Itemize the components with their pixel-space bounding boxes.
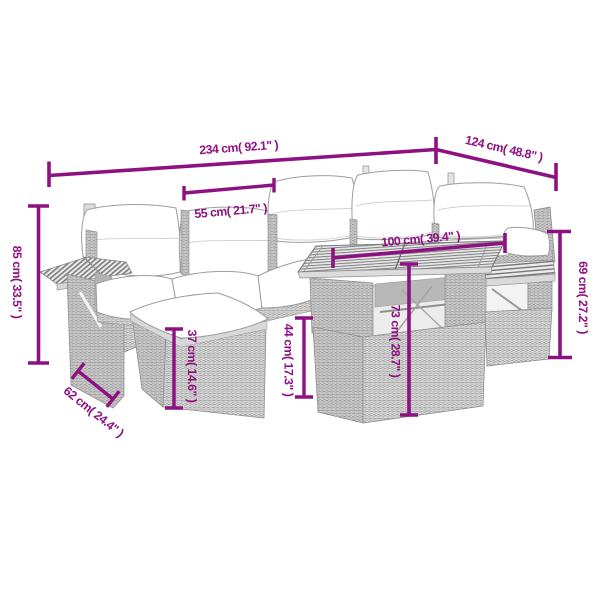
svg-text:44 cm( 17.3" ): 44 cm( 17.3" ) [282,324,296,397]
svg-text:37 cm( 14.6" ): 37 cm( 14.6" ) [185,330,199,403]
svg-text:234 cm( 92.1" ): 234 cm( 92.1" ) [199,138,279,158]
svg-text:69 cm( 27.2" ): 69 cm( 27.2" ) [576,261,590,334]
svg-text:85 cm( 33.5" ): 85 cm( 33.5" ) [10,246,24,319]
svg-text:73 cm( 28.7" ): 73 cm( 28.7" ) [389,305,403,378]
